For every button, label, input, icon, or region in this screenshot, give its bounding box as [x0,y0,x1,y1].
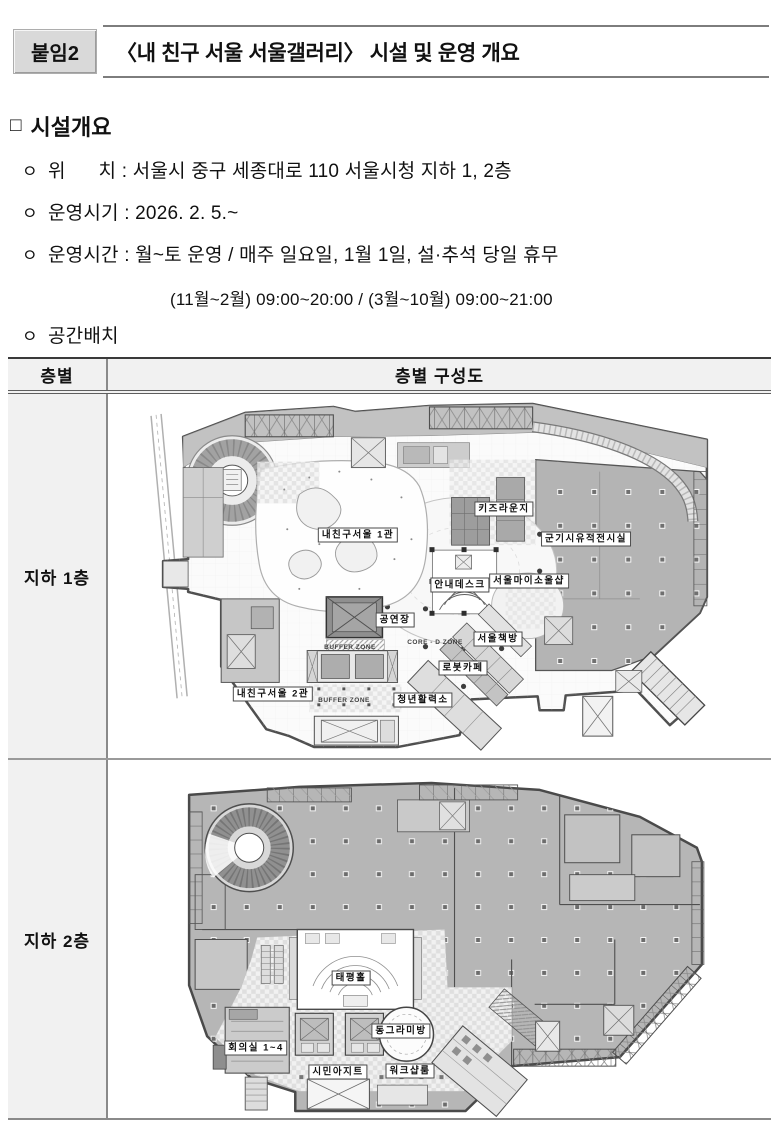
b2-taepyeong-hall [289,930,421,1010]
bullet-location-text: 위 치 : 서울시 중구 세종대로 110 서울시청 지하 1, 2층 [48,161,512,182]
plan-label-info-desk: 안내데스크 [430,578,489,593]
floor-table: 층별 층별 구성도 지하 1층 [8,357,771,1120]
b2-spiral-ramp [205,804,293,892]
plan-label-buffer-zone-2: BUFFER ZONE [315,697,373,705]
section-heading-text: 시설개요 [30,110,111,142]
subway-passage [151,414,187,698]
bullet-layout-text: 공간배치 [48,326,119,347]
plan-cell-b1: 키즈라운지 군기시유적전시실 내친구서울 1관 안내데스크 서울마이소울샵 공연… [108,394,771,758]
col-header-floor: 층별 [8,359,108,390]
plan-label-stage: 공연장 [376,613,415,628]
bullet-period-text: 운영시기 : 2026. 2. 5.~ [48,203,238,224]
bullet-location: ㅇ위 치 : 서울시 중구 세종대로 110 서울시청 지하 1, 2층 [22,156,512,183]
table-header-row: 층별 층별 구성도 [8,357,771,394]
title-band: 〈내 친구 서울 서울갤러리〉 시설 및 운영 개요 [103,25,769,78]
plan-label-soul-shop: 서울마이소울샵 [489,574,569,589]
plan-label-core-d-zone: CORE - D ZONE [404,639,466,647]
plan-label-robot-cafe: 로봇카페 [439,661,488,676]
bullet-hours-detail: (11월~2월) 09:00~20:00 / (3월~10월) 09:00~21… [170,285,553,310]
plan-label-taepyeong-hall: 태평홀 [332,971,371,986]
bullet-layout: ㅇ공간배치 [22,321,119,348]
page-title: 〈내 친구 서울 서울갤러리〉 시설 및 운영 개요 [103,37,519,67]
plan-label-hall2: 내친구서울 2관 [233,687,313,702]
circle-bullet-icon: ㅇ [22,199,48,224]
floor-cell-b1: 지하 1층 [8,394,108,758]
plan-label-hall1: 내친구서울 1관 [318,528,398,543]
col-header-plan: 층별 구성도 [108,359,771,390]
plan-label-gungisi: 군기시유적전시실 [541,532,631,547]
bullet-hours-detail-text: (11월~2월) 09:00~20:00 / (3월~10월) 09:00~21… [170,290,553,309]
attachment-badge: 붙임2 [13,29,97,74]
table-row-b2: 지하 2층 [8,760,771,1120]
plan-label-buffer-zone-1: BUFFER ZONE [321,644,379,652]
b1-stage [326,597,382,638]
square-bullet-icon: □ [10,115,21,137]
plan-label-circle-room: 동그라미방 [371,1024,430,1039]
table-row-b1: 지하 1층 [8,394,771,760]
document-page: { "header": { "badge": "붙임2", "title": "… [0,0,780,1135]
plan-label-meeting-rooms: 회의실 1~4 [224,1041,287,1056]
circle-bullet-icon: ㅇ [22,157,48,182]
plan-label-workshop-room: 워크샵룸 [386,1064,435,1079]
plan-label-bookstore: 서울책방 [474,632,523,647]
bullet-period: ㅇ운영시기 : 2026. 2. 5.~ [22,198,238,225]
floor-plan-b2 [108,760,771,1118]
bullet-hours: ㅇ운영시간 : 월~토 운영 / 매주 일요일, 1월 1일, 설·추석 당일 … [22,240,559,267]
section-heading: □ 시설개요 [10,110,111,142]
plan-label-citizen-hideout: 시민아지트 [308,1065,367,1080]
circle-bullet-icon: ㅇ [22,241,48,266]
plan-label-youth: 청년활력소 [393,693,452,708]
bullet-hours-text: 운영시간 : 월~토 운영 / 매주 일요일, 1월 1일, 설·추석 당일 휴… [48,245,559,266]
plan-label-kids-lounge: 키즈라운지 [474,502,533,517]
floor-cell-b2: 지하 2층 [8,760,108,1118]
plan-cell-b2: 태평홀 동그라미방 회의실 1~4 시민아지트 워크샵룸 [108,760,771,1118]
circle-bullet-icon: ㅇ [22,322,48,347]
